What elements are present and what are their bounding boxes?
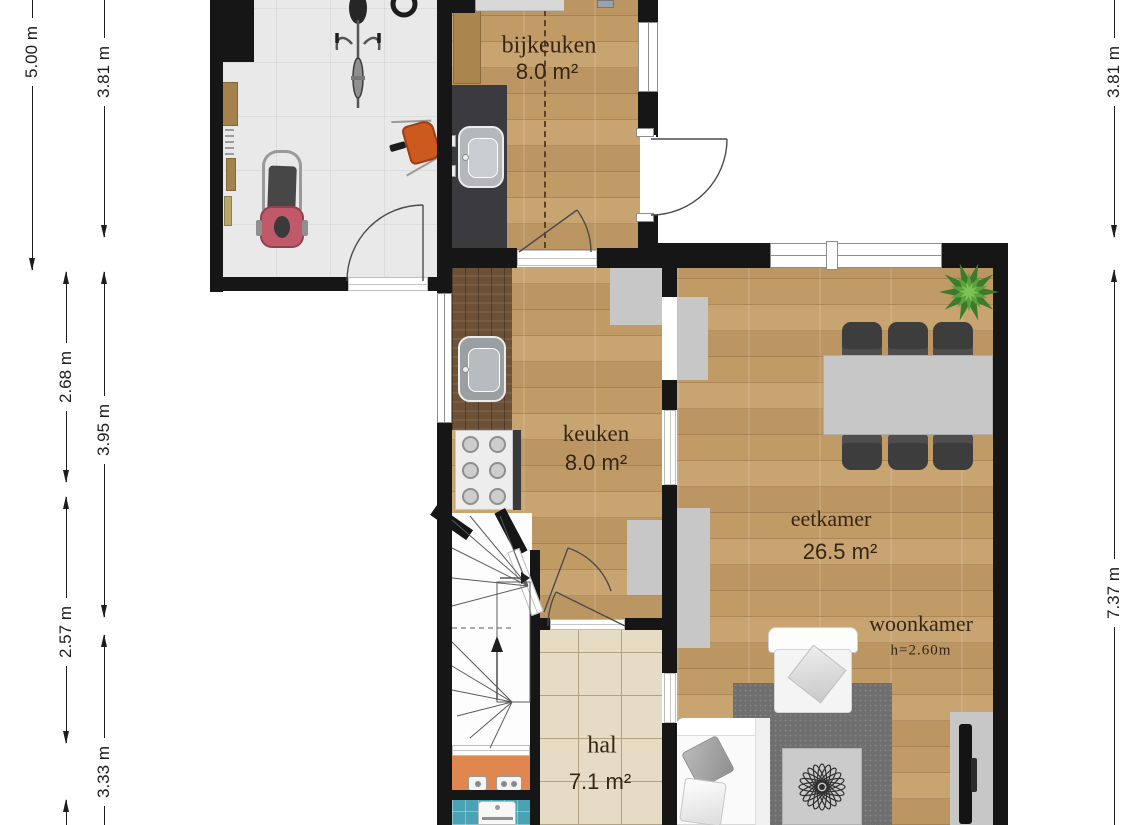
door-frame-cap (636, 213, 654, 222)
wall (662, 380, 677, 410)
wall (437, 790, 535, 800)
door-opening (348, 277, 428, 291)
shelf-plank (222, 82, 238, 126)
wall (437, 248, 517, 268)
washing-machine (478, 801, 516, 825)
floor-plan: bijkeuken 8.0 m² keuken 8.0 m² eetkamer … (0, 0, 1145, 825)
mower-engine (274, 216, 290, 238)
vent-unit (597, 0, 614, 8)
dim-left-mid-a: 2.68 m (55, 272, 77, 482)
fixture-dot (511, 781, 517, 787)
wall (625, 618, 665, 630)
ladder (225, 128, 234, 155)
stove-burner (489, 436, 506, 453)
door-opening (664, 673, 676, 723)
wall (437, 267, 452, 293)
dining-chair (933, 434, 973, 470)
toilet-fixture (496, 776, 522, 791)
dim-arrow (101, 225, 107, 238)
dim-label: 3.81 m (92, 38, 116, 106)
wall (993, 243, 1008, 825)
wall (210, 277, 348, 291)
window (437, 293, 452, 423)
dim-left-low-a: 2.57 m (55, 497, 77, 743)
shelf-plank (226, 158, 236, 191)
dim-label: 2.68 m (54, 343, 78, 411)
dim-label: 3.95 m (92, 396, 116, 464)
dining-chair (933, 322, 973, 358)
dim-label: 5.00 m (20, 18, 44, 86)
sink-basin (468, 138, 498, 178)
door-opening (664, 410, 676, 485)
dim-label: 2.57 m (54, 598, 78, 666)
dining-chair (888, 322, 928, 358)
dim-arrow (63, 470, 69, 483)
kitchen-mat (627, 520, 662, 595)
stove-burner (489, 462, 506, 479)
dim-label: 7.37 m (1102, 559, 1126, 627)
wall-cabinet (677, 508, 710, 648)
garden-tool (224, 196, 232, 226)
toilet-fixture (468, 776, 487, 791)
wall (662, 723, 677, 825)
door-opening (517, 250, 597, 266)
exterior-ledge (476, 0, 564, 11)
door-opening (452, 745, 530, 756)
dim-arrow (101, 605, 107, 618)
wall (437, 0, 475, 13)
dim-arrow (63, 799, 69, 812)
dining-chair (842, 434, 882, 470)
dim-label: 3.33 m (92, 738, 116, 806)
workbench (220, 0, 254, 62)
window-mullion (826, 241, 838, 270)
utility-sink (458, 126, 504, 188)
dim-label: 3.81 m (1102, 38, 1126, 106)
floorplan-canvas: 5.00 m 3.81 m 2.68 m 3.95 m 2.57 m 3.33 … (0, 0, 1145, 825)
wall-cabinet (677, 297, 708, 380)
gas-stove (455, 430, 513, 510)
dim-line (1114, 270, 1115, 825)
door-frame-cap (636, 128, 654, 137)
wall (210, 0, 223, 292)
door-opening (550, 619, 625, 630)
dim-line (104, 0, 105, 237)
dim-left-outer: 5.00 m (21, 0, 43, 270)
armchair (768, 627, 858, 717)
fixture-dot (475, 781, 481, 787)
sink-faucet (462, 154, 469, 161)
sink-basin (468, 348, 500, 392)
dim-arrow (1111, 225, 1117, 238)
mower-wheel (302, 220, 308, 236)
sofa (676, 718, 770, 825)
washer-line (482, 817, 513, 820)
coffee-table (782, 748, 862, 825)
window (770, 243, 942, 268)
sofa-arm (755, 718, 770, 825)
wheelbarrow-handle (389, 141, 406, 152)
dining-chair (888, 434, 928, 470)
stove-burner (462, 436, 479, 453)
wall (655, 243, 770, 268)
tv-mount (971, 758, 977, 792)
dim-left-bottom-stub (55, 800, 77, 825)
dim-right-main: 7.37 m (1103, 270, 1125, 825)
dim-arrow (63, 496, 69, 509)
wall (662, 267, 677, 297)
washer-dot (495, 805, 500, 810)
sink-faucet (462, 366, 469, 373)
dim-arrow (63, 271, 69, 284)
bijkeuken-cabinet (453, 10, 481, 84)
dim-arrow (63, 731, 69, 744)
dim-left-low-b: 3.33 m (93, 635, 115, 825)
stove-burner (462, 462, 479, 479)
dim-right-top: 3.81 m (1103, 0, 1125, 237)
oven-strip (513, 430, 521, 510)
stove-burner (462, 488, 479, 505)
dining-chair (842, 322, 882, 358)
fixture-dot (501, 781, 507, 787)
wall (437, 423, 452, 825)
wall (638, 0, 658, 22)
dim-left-mid-b: 3.95 m (93, 272, 115, 617)
section-line (544, 0, 546, 248)
wall (662, 485, 677, 673)
kitchen-mat (610, 268, 662, 325)
dim-arrow (101, 271, 107, 284)
dining-table (823, 355, 993, 435)
lawnmower (256, 148, 308, 250)
pillow (679, 777, 727, 825)
dim-arrow (1111, 269, 1117, 282)
window (638, 22, 658, 92)
kitchen-sink (458, 336, 506, 402)
dim-left-inner-top: 3.81 m (93, 0, 115, 237)
hal-floor (535, 630, 662, 825)
dim-arrow (101, 634, 107, 647)
dim-arrow (29, 258, 35, 271)
door-opening (640, 135, 656, 215)
stove-burner (489, 488, 506, 505)
mower-wheel (256, 220, 262, 236)
dim-line (1114, 0, 1115, 237)
toilet-floor (452, 755, 535, 792)
